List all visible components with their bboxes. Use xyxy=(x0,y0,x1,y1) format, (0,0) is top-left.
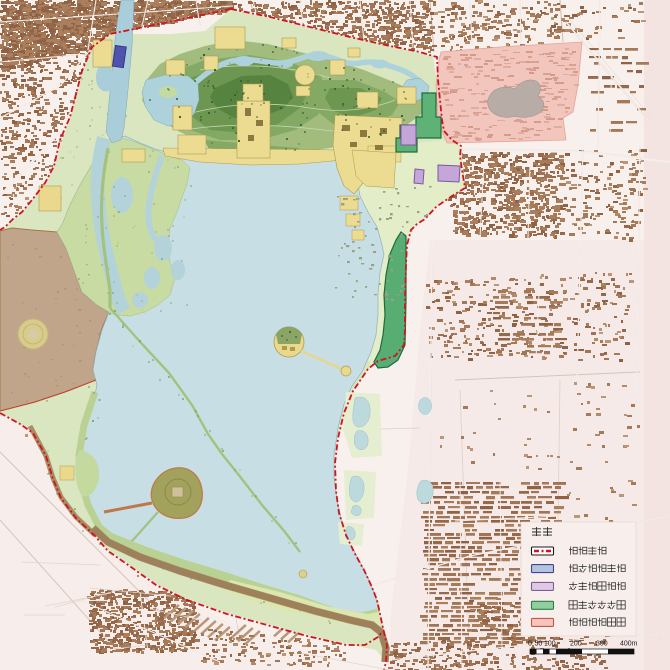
svg-text:400m: 400m xyxy=(620,641,638,648)
svg-text:100: 100 xyxy=(544,641,556,648)
svg-text:0: 0 xyxy=(528,641,532,648)
svg-text:200: 200 xyxy=(570,641,582,648)
svg-text:50: 50 xyxy=(535,641,543,648)
svg-text:300: 300 xyxy=(596,641,608,648)
